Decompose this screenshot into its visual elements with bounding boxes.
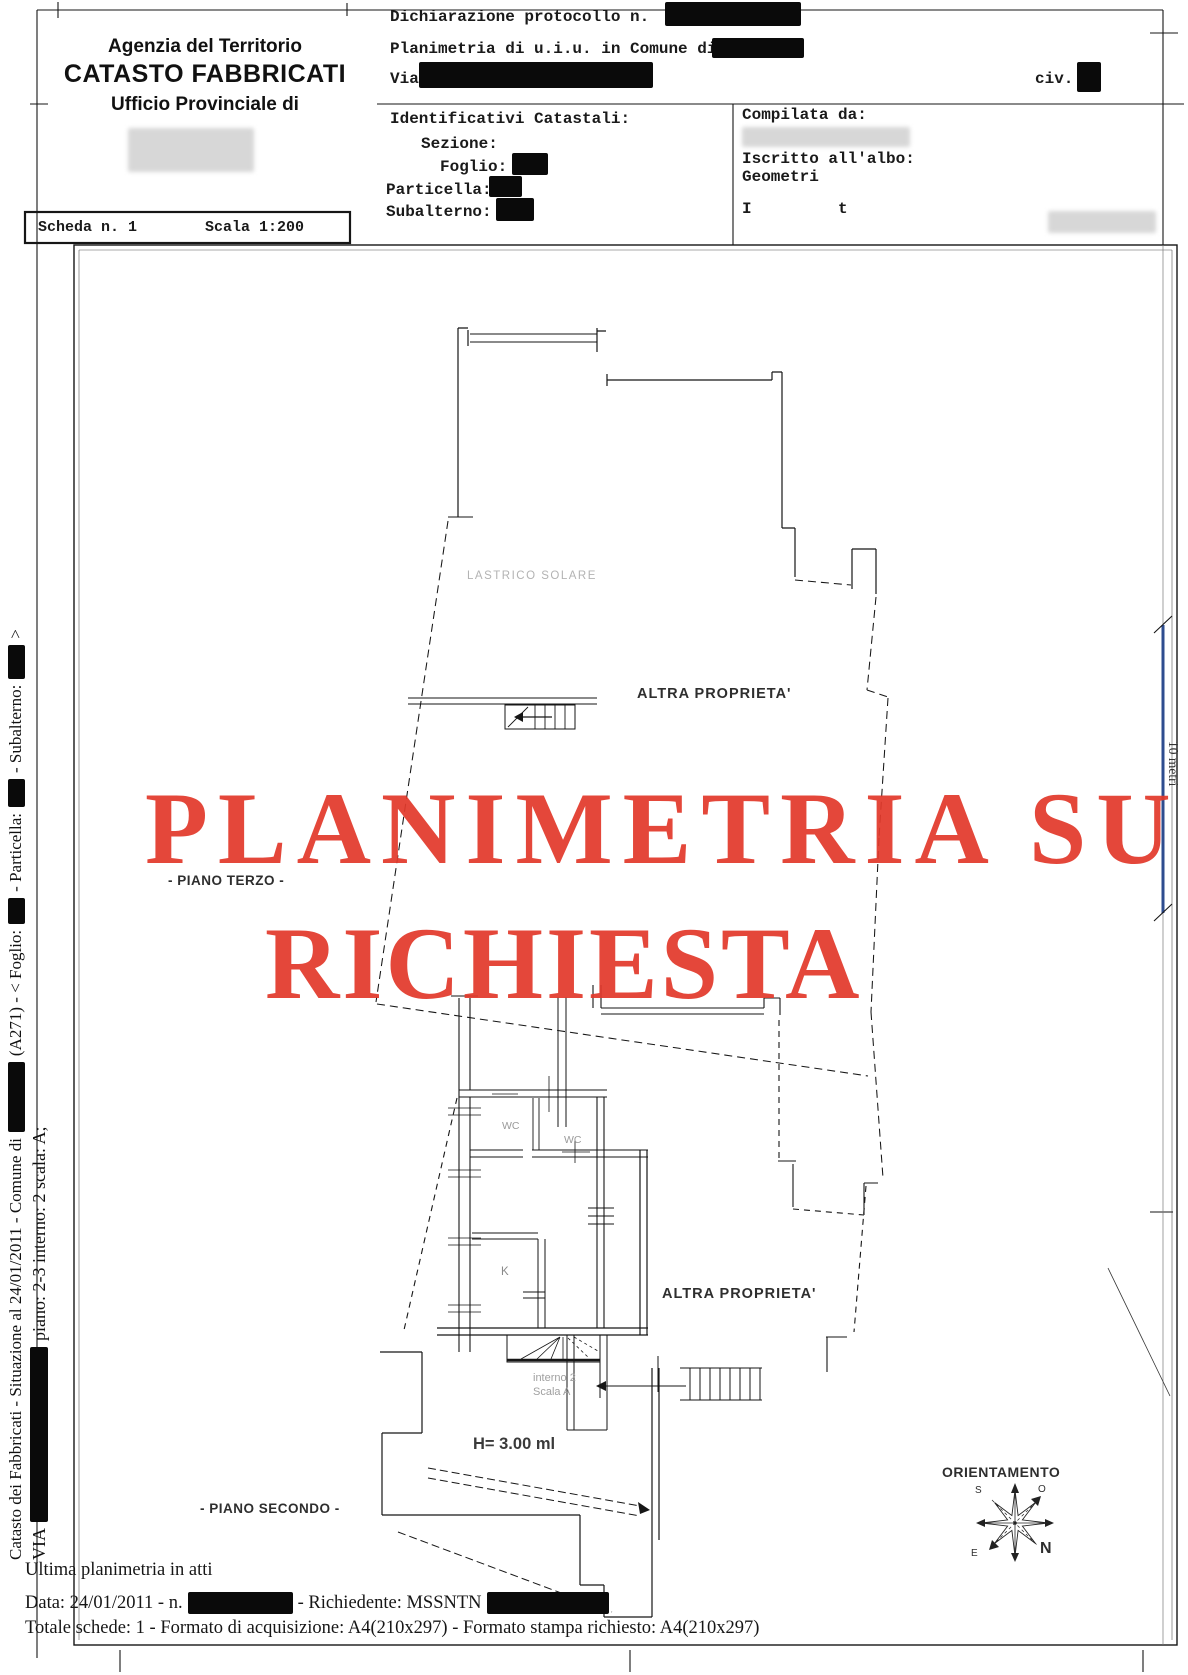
scala-label: Scala A [533,1386,570,1398]
lastrico-solare-label: LASTRICO SOLARE [467,570,597,582]
catasto-title: CATASTO FABBRICATI [60,60,350,89]
iscritto-label: Iscritto all'albo: [742,150,915,168]
upper-floor-plan [376,328,888,1178]
particella-label: Particella: [386,181,492,199]
side-text-segment: - Subalterno: [6,685,26,773]
interno-label: interno 2 [533,1372,576,1384]
scheda-number: Scheda n. 1 [38,219,137,236]
totale-schede-row: Totale schede: 1 - Formato di acquisizio… [25,1618,759,1639]
terrace-outline [380,1352,659,1617]
kitchen-label: K [501,1266,509,1278]
footer-richiedente-label: - Richiedente: MSSNTN [298,1593,482,1614]
piano-secondo-label: - PIANO SECONDO - [200,1501,340,1516]
footer-data-row: Data: 24/01/2011 - n. - Richiedente: MSS… [25,1592,609,1614]
subalterno-label: Subalterno: [386,203,492,221]
compass-s-label: S [975,1485,982,1496]
cadastral-floorplan-sheet: Agenzia del Territorio CATASTO FABBRICAT… [0,0,1188,1675]
compass-o-label: O [1038,1484,1046,1495]
side-text-segment: - Particella: [6,813,26,892]
redaction-box [512,153,548,175]
redaction-box [8,1062,25,1132]
side-text-segment: (A271) - < Foglio: [6,930,26,1056]
ultima-planimetria-note: Ultima planimetria in atti [25,1560,213,1581]
orientamento-title: ORIENTAMENTO [942,1464,1060,1480]
redaction-box [8,779,25,807]
side-text-segment: piano: 2-3 interno: 2 scala: A; [29,1127,50,1341]
footer-data-label: Data: 24/01/2011 - n. [25,1593,183,1614]
partial-initial: I [742,200,752,218]
redaction-box [496,198,534,221]
redaction-box [419,62,653,88]
civ-label: civ. [1035,70,1073,88]
scale-label: Scala 1:200 [205,219,304,236]
redaction-box [1077,62,1101,92]
redaction-box [30,1347,48,1522]
external-stair [596,1356,762,1400]
side-text-line1: Catasto dei Fabbricati - Situazione al 2… [6,442,26,1560]
side-text-segment: > [6,629,26,639]
height-label: H= 3.00 ml [473,1435,555,1454]
compilata-label: Compilata da: [742,106,867,124]
sezione-label: Sezione: [421,135,498,153]
altra-proprieta-bottom-label: ALTRA PROPRIETA' [662,1286,817,1302]
wc2-label: WC [564,1134,582,1146]
partial-initial: t [838,200,848,218]
upper-stair [505,705,575,729]
planimetria-label: Planimetria di u.i.u. in Comune di [390,40,716,58]
altra-proprieta-top-label: ALTRA PROPRIETA' [637,686,792,702]
wc1-label: WC [502,1120,520,1132]
redaction-box [489,176,522,197]
window-ticks [448,1108,481,1312]
identificativi-label: Identificativi Catastali: [390,110,630,128]
radiator-symbol [588,1208,614,1224]
side-text-segment: VIA [29,1528,50,1560]
blurred-compiler-name [742,127,910,147]
declaration-label: Dichiarazione protocollo n. [390,8,649,26]
redaction-box [665,2,801,26]
redaction-box [712,38,804,58]
entry-stair [507,1335,600,1362]
balcony-boundary-dashed [404,1098,457,1330]
stamp-line2: RICHIESTA [265,905,862,1023]
agency-name: Agenzia del Territorio [60,36,350,58]
redaction-box [487,1592,609,1614]
office-label: Ufficio Provinciale di [60,94,350,116]
redaction-box [188,1592,293,1614]
side-text-segment: Catasto dei Fabbricati - Situazione al 2… [6,1138,26,1560]
blurred-office-name [128,128,254,172]
stamp-line1: PLANIMETRIA SU [145,770,1181,888]
compass-e-label: E [971,1548,978,1559]
via-label: Via [390,70,419,88]
foglio-label: Foglio: [440,158,507,176]
albo-value: Geometri [742,168,819,186]
compass-n-label: N [1040,1540,1052,1558]
redaction-box [8,898,25,924]
redaction-box [8,645,25,679]
side-text-line2: VIA piano: 2-3 interno: 2 scala: A; [28,1035,50,1560]
blurred-signature [1048,211,1156,233]
